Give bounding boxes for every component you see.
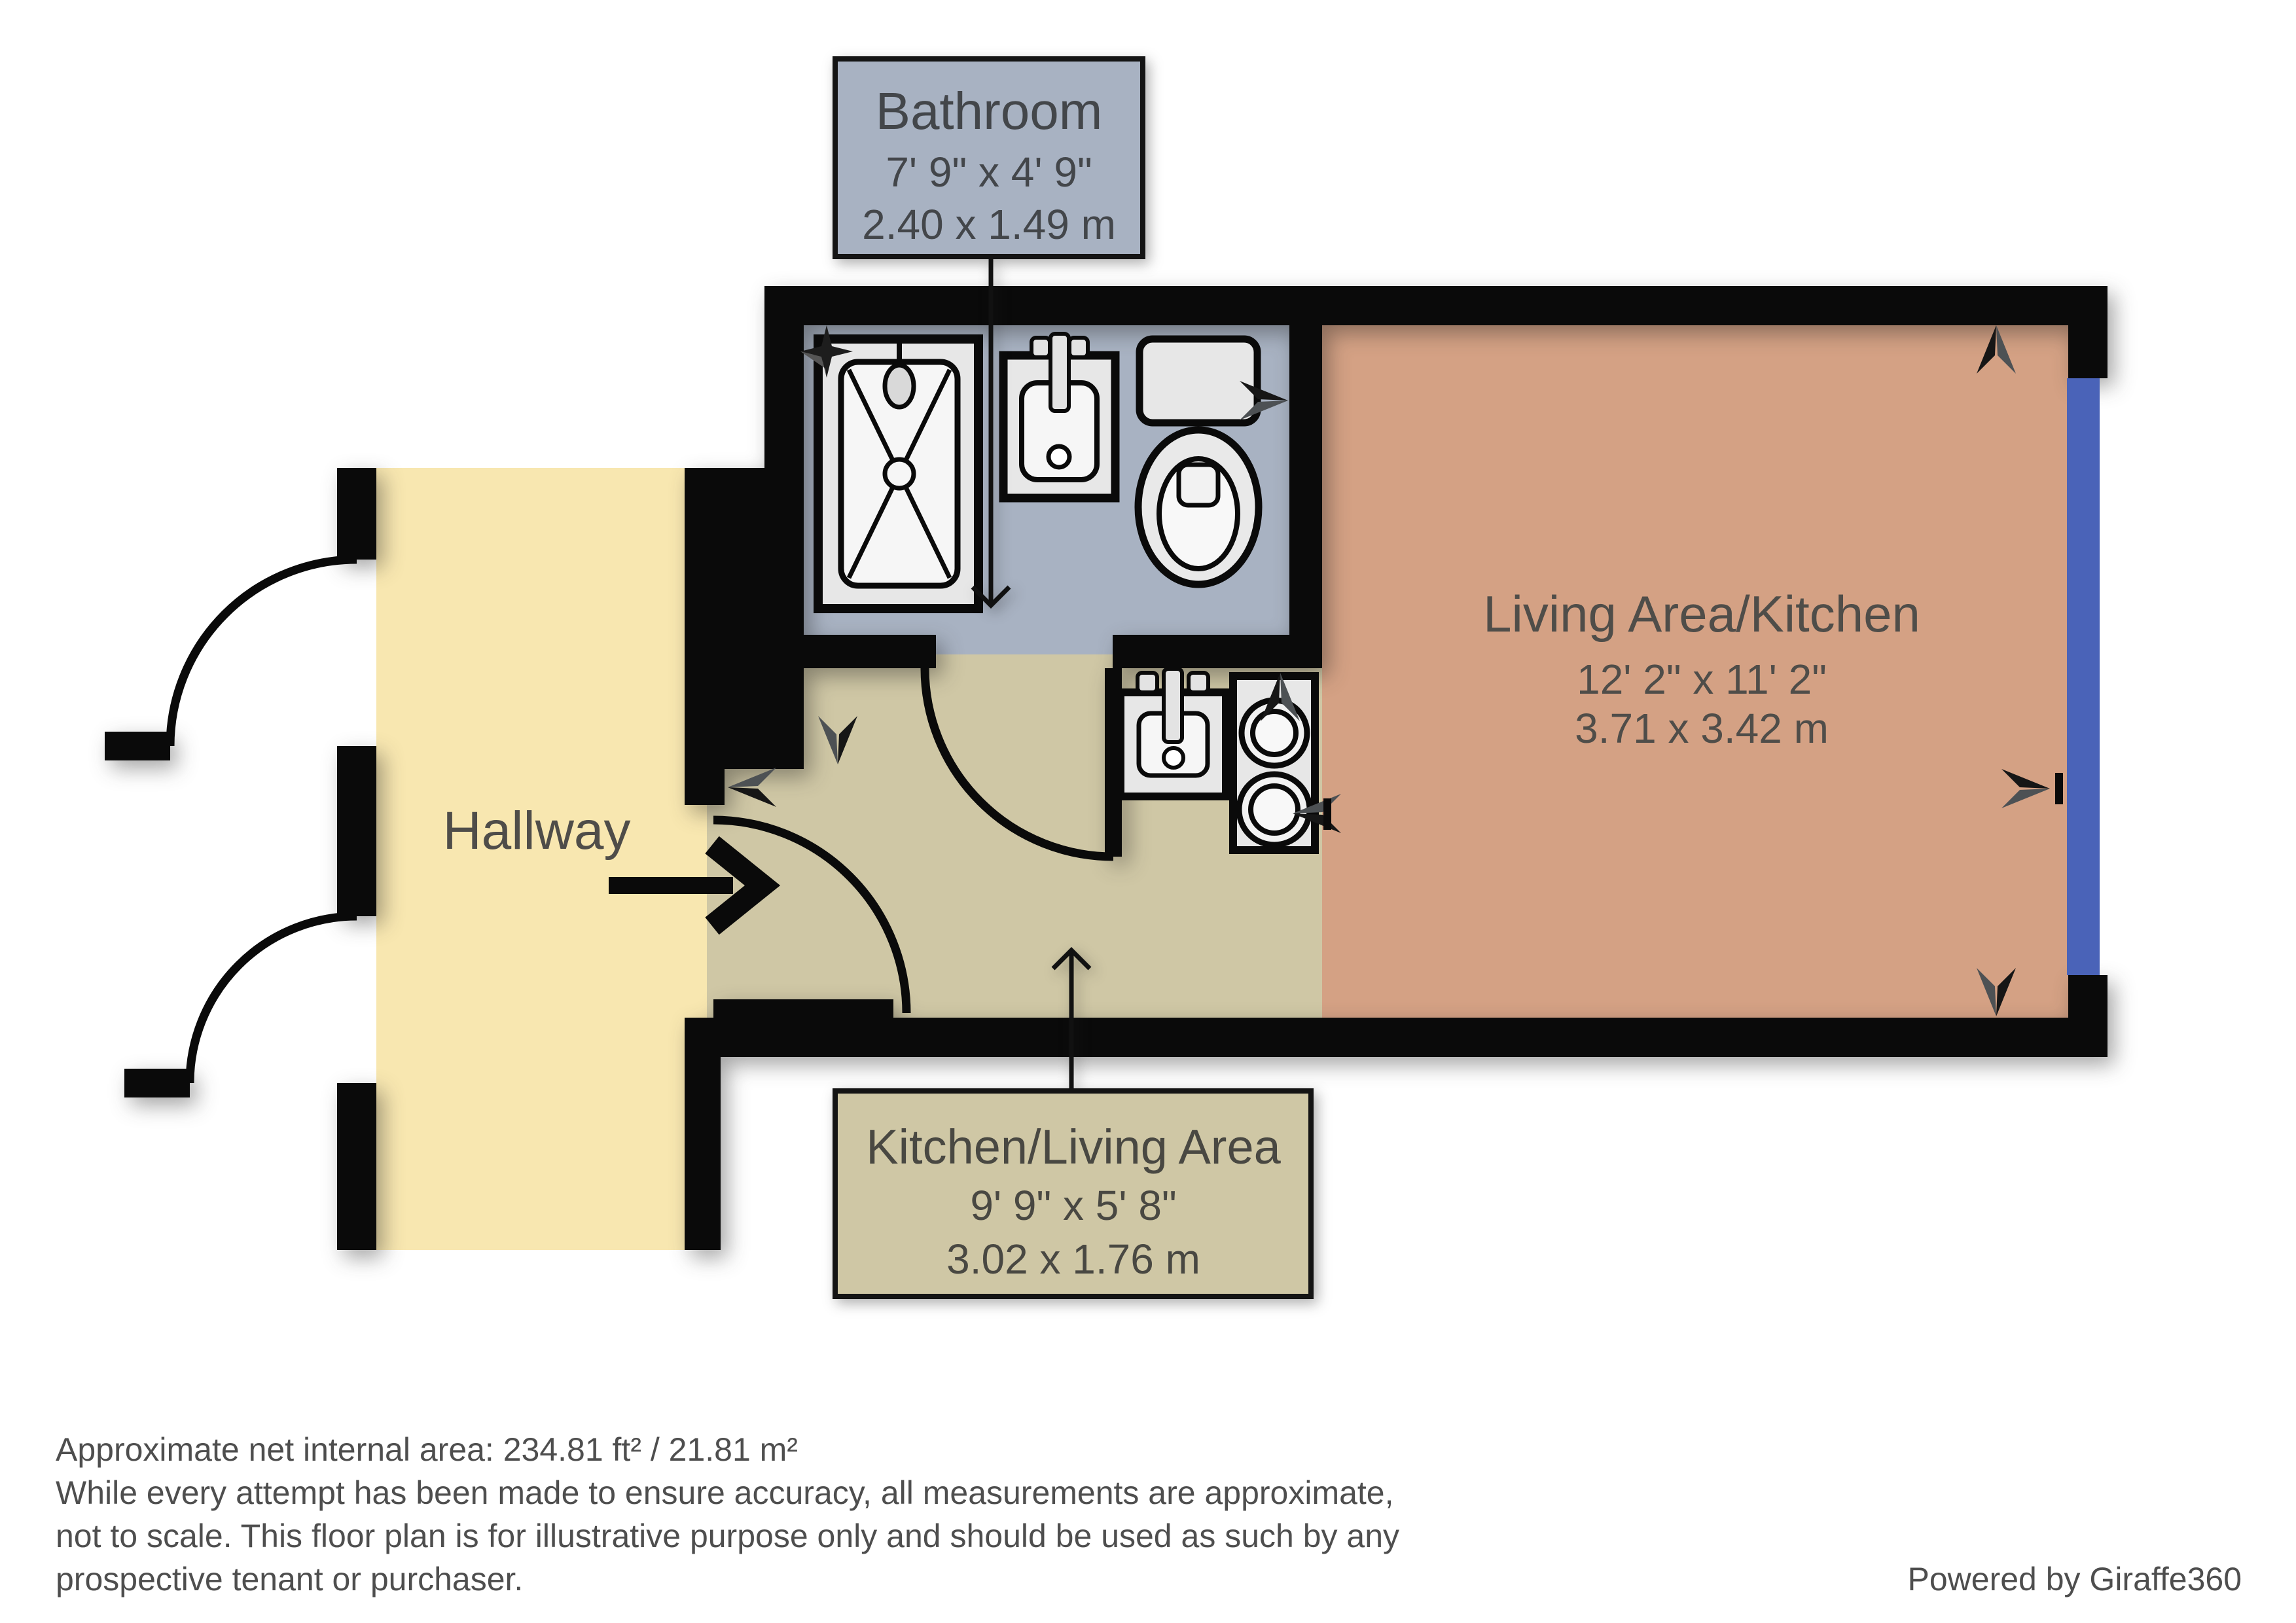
camera-tick bbox=[2055, 773, 2063, 804]
camera-tick bbox=[1323, 798, 1331, 830]
wall-doorway-jamb bbox=[685, 769, 725, 805]
toilet-icon bbox=[1138, 339, 1259, 584]
wall-stub-upper-door bbox=[105, 732, 170, 760]
wall-bathroom-partition bbox=[1289, 325, 1322, 668]
bathroom-label-metric: 2.40 x 1.49 m bbox=[862, 201, 1116, 248]
wall-hallway-right-slab bbox=[685, 468, 804, 769]
bathroom-label-name: Bathroom bbox=[876, 82, 1103, 140]
floorplan-page: Bathroom 7' 9" x 4' 9" 2.40 x 1.49 m Kit… bbox=[0, 0, 2296, 1623]
wall-hallway-left-b bbox=[337, 746, 376, 916]
shower-icon bbox=[818, 339, 978, 609]
wall-right-bottom-post bbox=[2068, 975, 2108, 1057]
wall-stub-lower-door bbox=[124, 1069, 190, 1097]
wall-bathroom-bottom-left bbox=[804, 635, 936, 668]
living-label-name: Living Area/Kitchen bbox=[1483, 585, 1920, 643]
bathroom-sink-icon bbox=[1003, 334, 1115, 498]
wall-right-top-post bbox=[2068, 286, 2108, 378]
bathroom-label-imperial: 7' 9" x 4' 9" bbox=[886, 149, 1092, 196]
hallway-label: Hallway bbox=[442, 801, 630, 861]
kitchen-label-metric: 3.02 x 1.76 m bbox=[946, 1236, 1200, 1283]
wall-corner-piece bbox=[685, 1018, 764, 1057]
hallway-door-arc-lower bbox=[190, 916, 357, 1083]
kitchen-label-imperial: 9' 9" x 5' 8" bbox=[970, 1182, 1176, 1229]
entry-door-leaf bbox=[713, 999, 893, 1019]
hallway-door-arc-upper bbox=[170, 560, 357, 746]
kitchen-label-name: Kitchen/Living Area bbox=[866, 1120, 1281, 1174]
wall-hallway-right-lower bbox=[685, 1057, 721, 1250]
window-right bbox=[2067, 378, 2100, 975]
disclaimer-line1: While every attempt has been made to ens… bbox=[56, 1474, 1394, 1511]
credit-label: Powered by Giraffe360 bbox=[1908, 1561, 2242, 1597]
footer: Approximate net internal area: 234.81 ft… bbox=[56, 1431, 2242, 1597]
kitchen-sink-icon bbox=[1121, 669, 1226, 796]
disclaimer-line2: not to scale. This floor plan is for ill… bbox=[56, 1518, 1399, 1554]
wall-top bbox=[764, 286, 2108, 325]
living-label-imperial: 12' 2" x 11' 2" bbox=[1577, 656, 1827, 703]
wall-hallway-left-a bbox=[337, 468, 376, 560]
living-label-metric: 3.71 x 3.42 m bbox=[1575, 705, 1829, 752]
wall-bottom bbox=[764, 1018, 2108, 1057]
area-note: Approximate net internal area: 234.81 ft… bbox=[56, 1431, 798, 1468]
floorplan-canvas: Bathroom 7' 9" x 4' 9" 2.40 x 1.49 m Kit… bbox=[0, 0, 2296, 1623]
disclaimer-line3: prospective tenant or purchaser. bbox=[56, 1561, 523, 1597]
wall-hallway-left-c bbox=[337, 1083, 376, 1250]
